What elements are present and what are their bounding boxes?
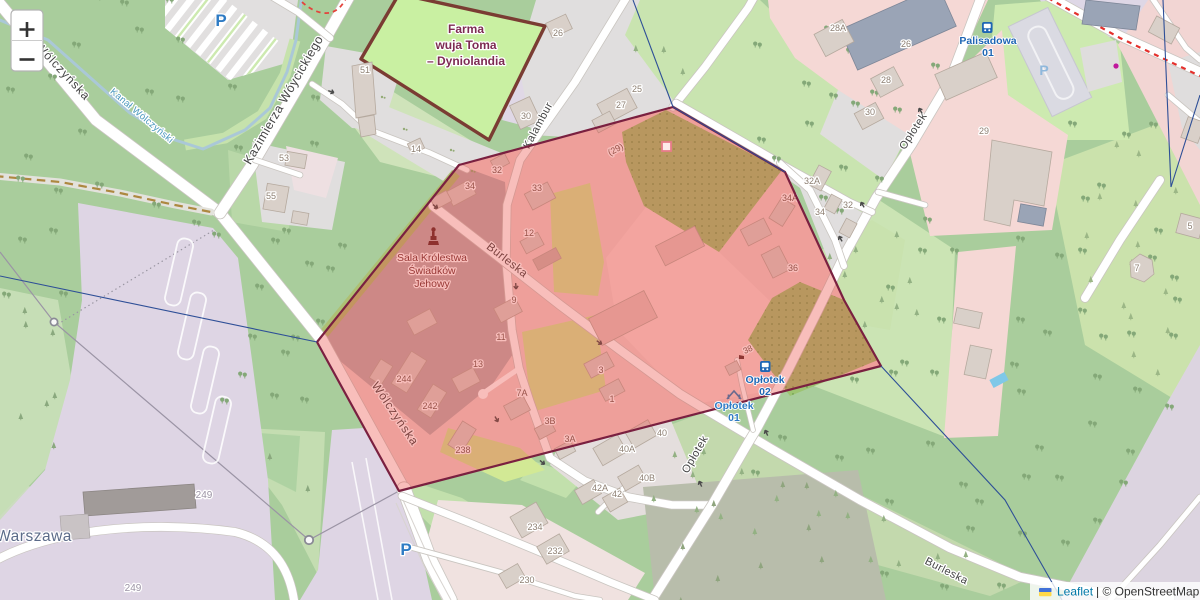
svg-text:32A: 32A xyxy=(804,176,820,186)
svg-text:Opłotek: Opłotek xyxy=(745,374,784,386)
svg-text:26: 26 xyxy=(901,39,911,49)
svg-text:Palisadowa: Palisadowa xyxy=(959,35,1016,47)
svg-text:28: 28 xyxy=(881,75,891,85)
svg-text:14: 14 xyxy=(411,144,421,154)
svg-text:Opłotek: Opłotek xyxy=(714,400,753,412)
svg-text:Leaflet: Leaflet xyxy=(1057,585,1094,599)
svg-text:P: P xyxy=(215,11,226,30)
svg-text:53: 53 xyxy=(279,153,289,163)
svg-text:34: 34 xyxy=(815,207,825,217)
svg-text:01: 01 xyxy=(982,47,994,59)
svg-text:40B: 40B xyxy=(639,473,655,483)
svg-text:51: 51 xyxy=(360,65,370,75)
svg-text:wuja Toma: wuja Toma xyxy=(434,38,496,52)
svg-text:32: 32 xyxy=(843,200,853,210)
svg-text:234: 234 xyxy=(527,522,542,532)
svg-text:40A: 40A xyxy=(619,444,635,454)
svg-text:02: 02 xyxy=(759,386,771,398)
svg-text:| © OpenStreetMap: | © OpenStreetMap xyxy=(1096,585,1200,599)
svg-text:30: 30 xyxy=(865,107,875,117)
svg-text:40: 40 xyxy=(657,428,667,438)
svg-text:25: 25 xyxy=(632,84,642,94)
svg-text:249: 249 xyxy=(125,583,142,594)
svg-text:55: 55 xyxy=(266,191,276,201)
svg-text:230: 230 xyxy=(519,575,534,585)
svg-text:249: 249 xyxy=(196,490,213,501)
svg-text:29: 29 xyxy=(979,126,989,136)
svg-text:42: 42 xyxy=(612,489,622,499)
svg-text:7: 7 xyxy=(1134,263,1139,273)
svg-text:232: 232 xyxy=(547,546,562,556)
svg-text:P: P xyxy=(400,540,411,559)
svg-text:01: 01 xyxy=(728,412,740,424)
svg-text:26: 26 xyxy=(553,28,563,38)
svg-text:27: 27 xyxy=(616,100,626,110)
svg-text:42A: 42A xyxy=(592,483,608,493)
svg-text:5: 5 xyxy=(1187,221,1192,231)
svg-text:Warszawa: Warszawa xyxy=(0,528,72,545)
svg-text:– Dyniolandia: – Dyniolandia xyxy=(427,54,505,68)
svg-text:P: P xyxy=(1039,62,1048,78)
svg-text:28A: 28A xyxy=(830,23,846,33)
svg-text:30: 30 xyxy=(521,111,531,121)
svg-text:Farma: Farma xyxy=(448,22,484,36)
